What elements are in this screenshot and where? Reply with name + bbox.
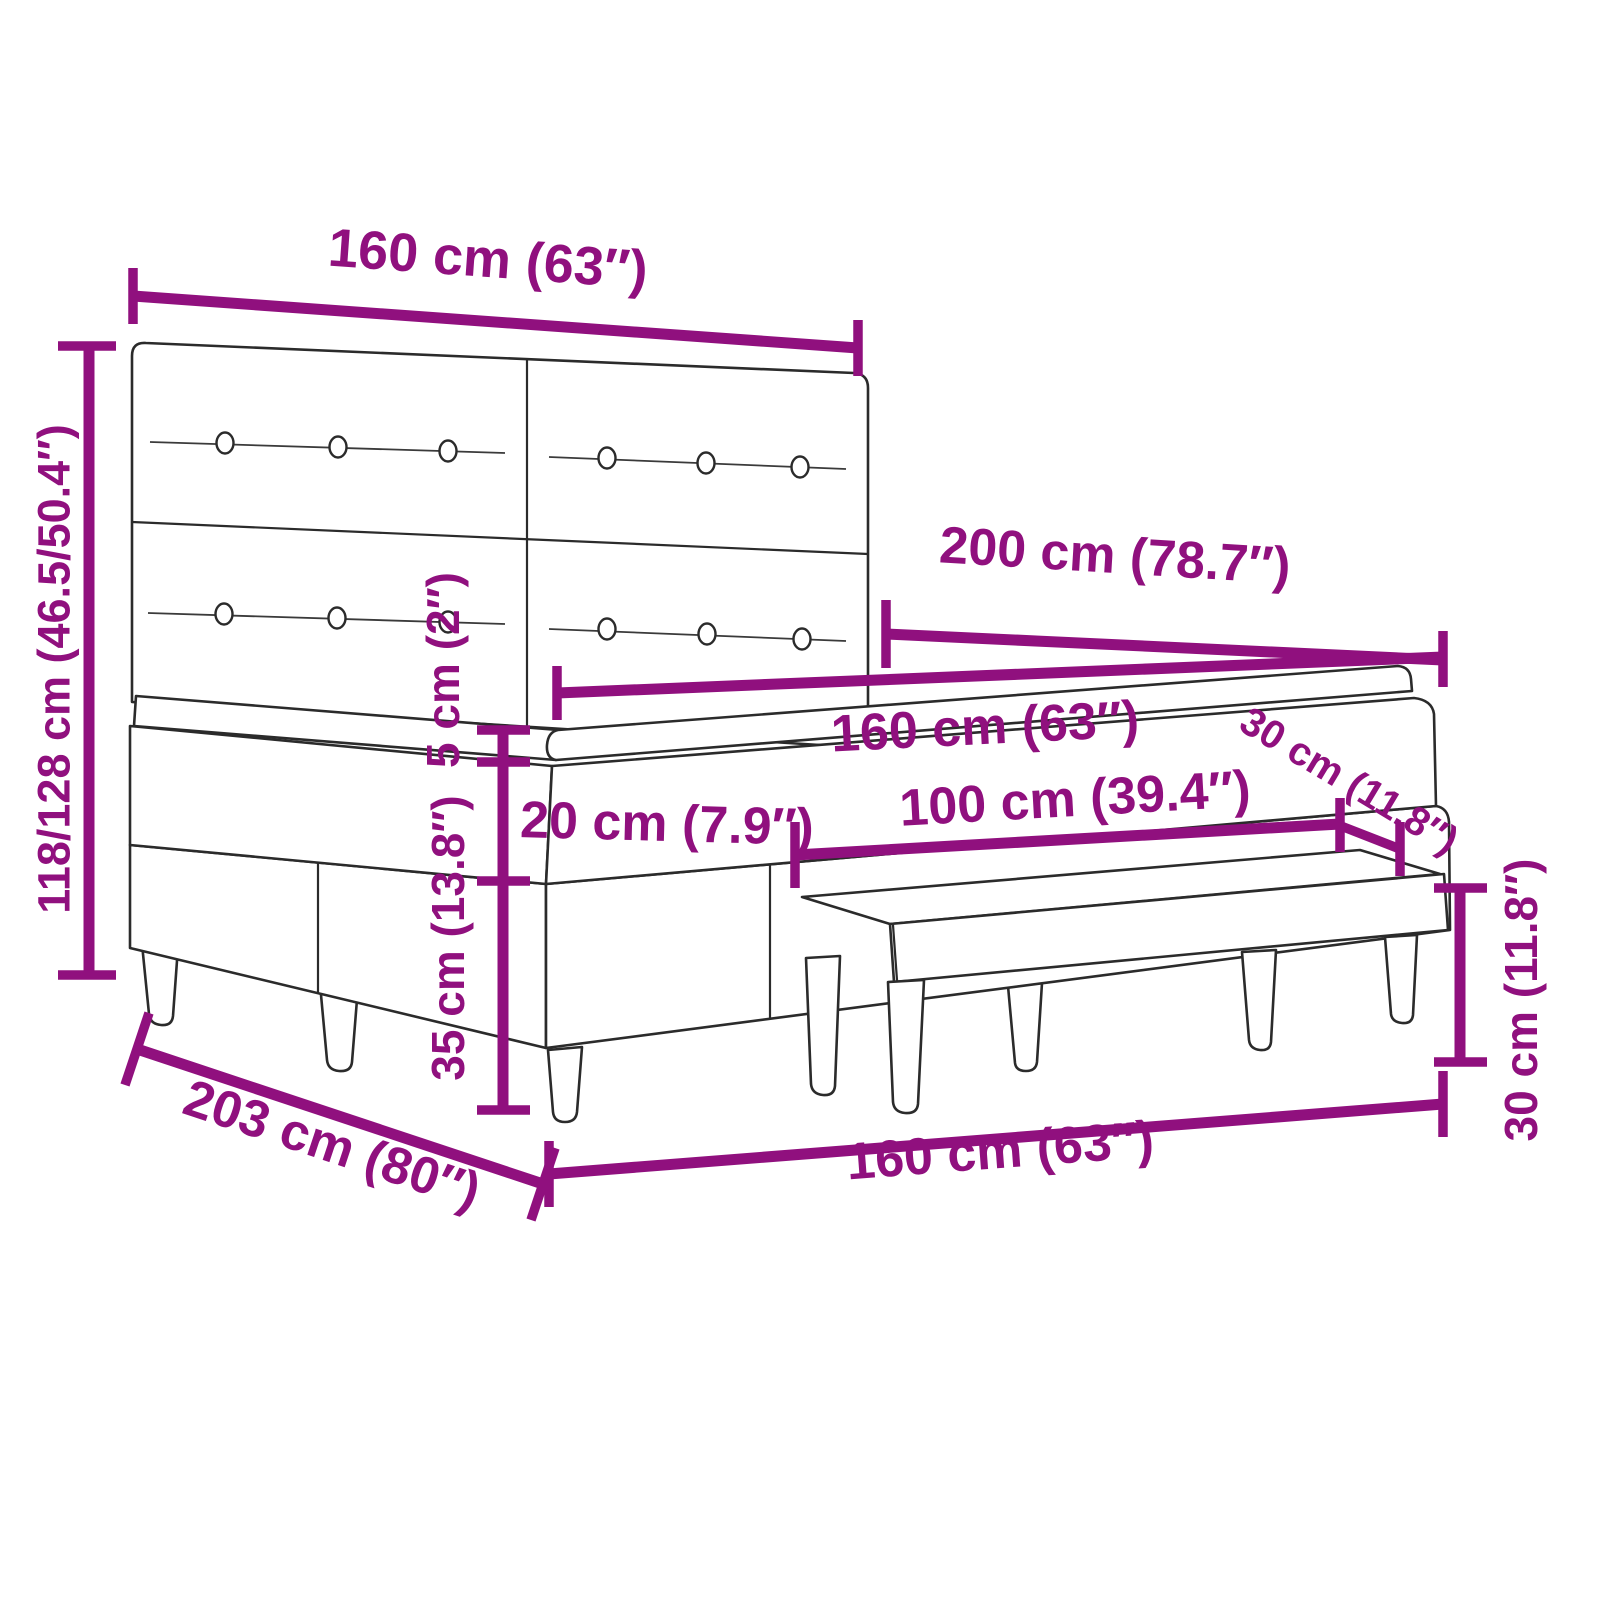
dim-bed-width-label: 160 cm (63″) [844,1111,1156,1192]
headboard-button-icon [330,437,347,458]
dim-topper-thickness-label: 5 cm (2″) [417,572,469,768]
headboard-button-icon [440,441,457,462]
headboard-button-icon [599,448,616,469]
headboard-button-icon [599,619,616,640]
headboard-button-icon [329,608,346,629]
headboard-button-icon [216,604,233,625]
dim-overall-height: 118/128 cm (46.5/50.4″) [29,346,117,975]
headboard-button-icon [792,457,809,478]
dim-mattress-thickness-label: 20 cm (7.9″) [519,791,814,857]
headboard-button-icon [698,453,715,474]
bed-dimension-diagram: 160 cm (63″) 118/128 cm (46.5/50.4″) 200… [0,0,1600,1600]
bench-leg-icon [806,956,840,1095]
dim-headboard-width-label: 160 cm (63″) [326,218,650,301]
bed-leg-icon [548,1047,582,1122]
bench [802,850,1448,1113]
dim-bed-length: 200 cm (78.7″) [886,516,1443,668]
bench-leg-icon [1242,950,1276,1050]
bench-leg-icon [888,980,924,1113]
dim-base-height-label: 35 cm (13.8″) [422,795,474,1080]
bed-leg-icon [1008,983,1042,1071]
headboard-button-icon [794,629,811,650]
headboard-button-icon [217,433,234,454]
dim-bed-width: 160 cm (63″) [549,1071,1443,1207]
headboard-button-icon [699,624,716,645]
dim-overall-height-label: 118/128 cm (46.5/50.4″) [29,424,80,913]
dim-bench-height-label: 30 cm (11.8″) [1495,859,1547,1142]
dim-bed-length-label: 200 cm (78.7″) [938,516,1292,595]
bench-leg-icon [1385,935,1417,1023]
diagram-canvas: 160 cm (63″) 118/128 cm (46.5/50.4″) 200… [0,0,1600,1600]
